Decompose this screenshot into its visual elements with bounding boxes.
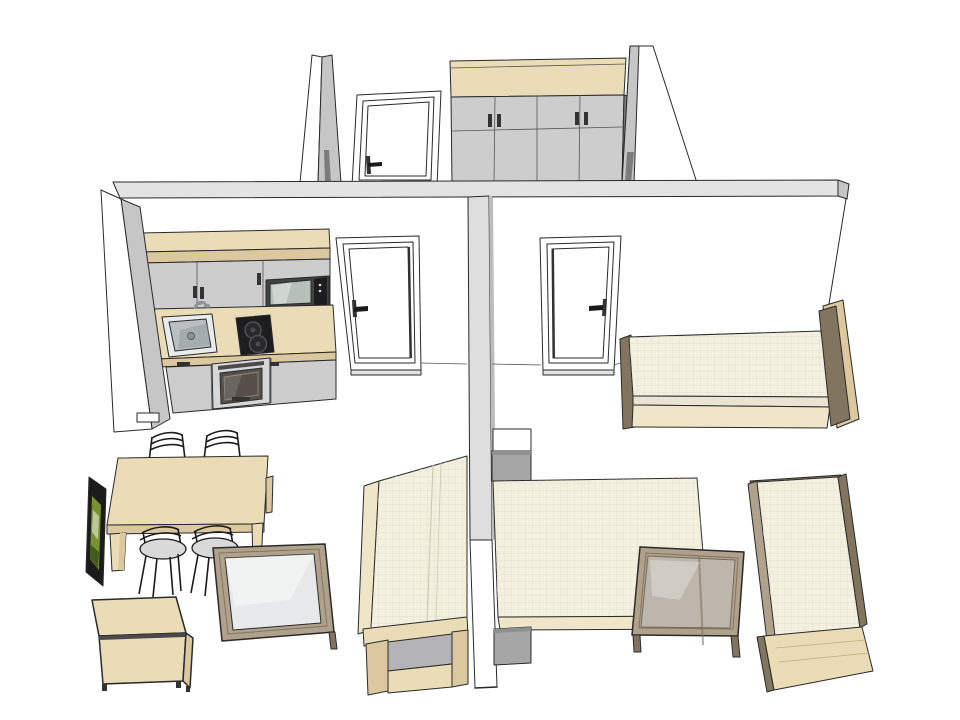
cabinet-handle — [193, 286, 197, 298]
wardrobe[interactable] — [450, 58, 632, 184]
wardrobe-top-panel — [450, 58, 626, 97]
glass-table-leg — [633, 635, 641, 652]
bed-left-vertical[interactable] — [358, 456, 468, 695]
mattress-texture — [629, 331, 831, 397]
door-leaf — [552, 247, 609, 358]
center-wall-base — [475, 687, 497, 688]
microwave-button — [319, 290, 322, 293]
door-threshold — [543, 370, 614, 375]
cabinet-handle — [257, 273, 261, 285]
wall-foot-cap — [137, 413, 159, 422]
room1-door[interactable] — [336, 236, 421, 375]
nightstand-lower — [492, 451, 531, 481]
foot-cabinet[interactable] — [494, 627, 531, 665]
drawer-handle — [232, 397, 250, 401]
kitchenette[interactable] — [140, 229, 336, 413]
base-handle — [177, 362, 190, 366]
nightstand-top-edge — [492, 451, 531, 455]
tv[interactable] — [86, 477, 106, 586]
door-handle — [589, 305, 603, 311]
wardrobe-handle — [575, 112, 579, 125]
burner-center — [251, 328, 256, 333]
wardrobe-handle — [497, 114, 501, 127]
sideboard[interactable] — [92, 597, 193, 692]
sink-drain — [188, 333, 195, 340]
table-edge — [107, 524, 264, 534]
footboard-leg — [452, 630, 468, 687]
center-wall-upper — [468, 196, 492, 540]
glass-table-leg — [329, 632, 337, 649]
chair-seat — [140, 539, 186, 559]
corridor-door[interactable] — [352, 91, 441, 186]
door-handle — [354, 306, 368, 312]
nightstand[interactable] — [492, 429, 531, 481]
render-viewport — [0, 0, 960, 720]
burner-center — [256, 342, 261, 347]
cabinet-handle — [200, 287, 204, 299]
wardrobe-handle — [488, 114, 492, 127]
door-threshold — [351, 370, 421, 375]
glass-table-left[interactable] — [213, 544, 337, 649]
mattress-texture — [371, 456, 467, 629]
sideboard-foot — [186, 686, 190, 692]
microwave-button — [319, 284, 322, 287]
wardrobe-handle — [584, 112, 588, 125]
back-wall-top — [113, 180, 847, 198]
sideboard-foot — [176, 681, 181, 688]
room2-door[interactable] — [540, 236, 621, 375]
nightstand-upper — [493, 429, 531, 451]
wardrobe-doors — [451, 95, 624, 184]
faucet-handle — [198, 301, 202, 305]
model-scene — [0, 0, 960, 720]
door-leaf — [349, 247, 410, 358]
center-wall-lower — [470, 540, 497, 688]
cabinet-body — [494, 627, 531, 665]
sideboard-top — [92, 597, 186, 636]
footboard-leg — [366, 640, 388, 695]
glass-table-leg — [731, 636, 740, 657]
faucet-handle — [206, 304, 210, 308]
bed-frame — [632, 405, 830, 428]
sideboard-foot — [102, 684, 107, 691]
table-top — [107, 456, 268, 525]
sideboard-front — [99, 633, 186, 684]
table-leg — [266, 476, 273, 513]
